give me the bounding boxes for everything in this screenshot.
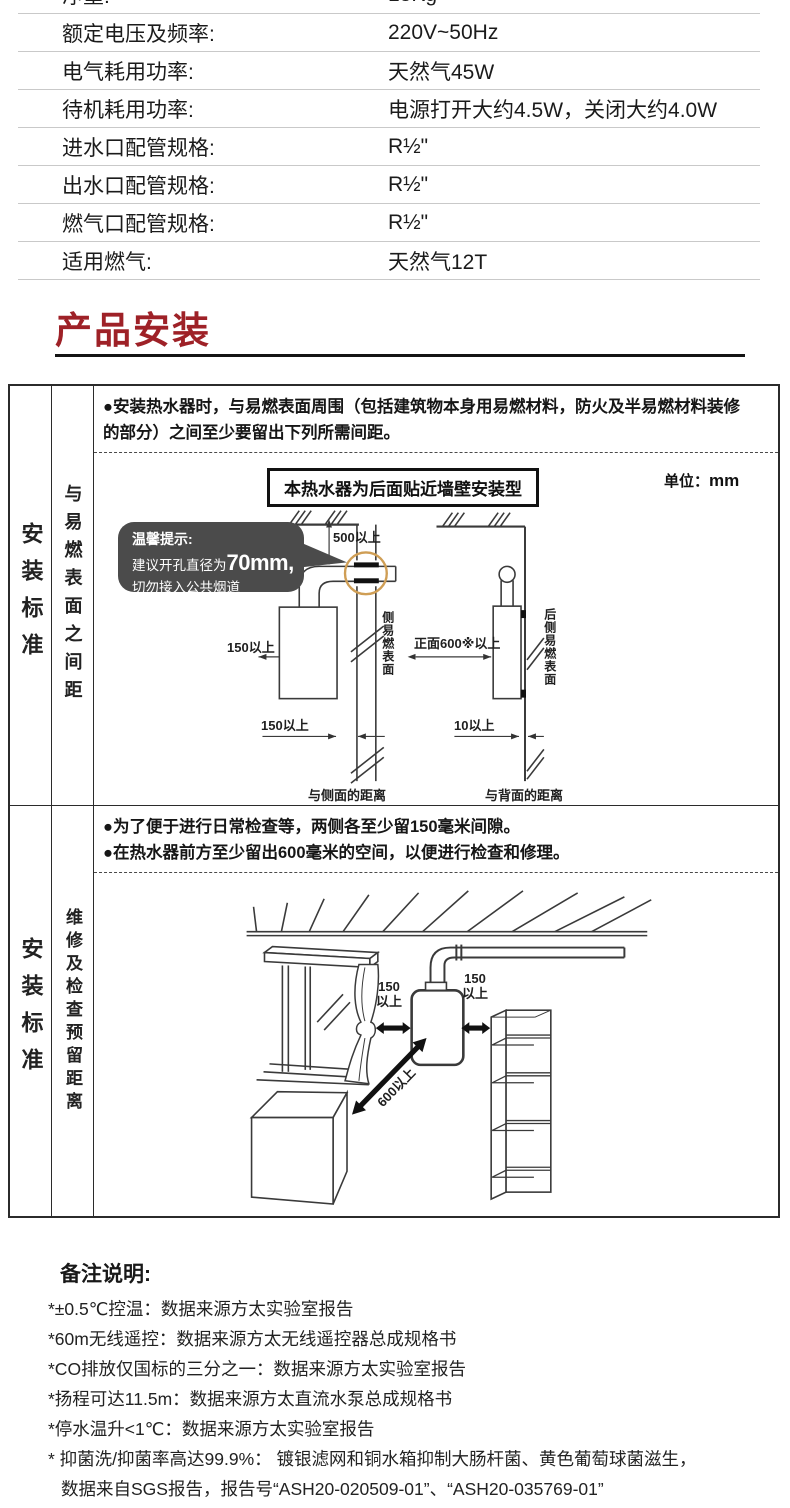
note-item: * 抑菌洗/抑菌率高达99.9%： 镀银滤网和铜水箱抑制大肠杆菌、黄色葡萄球菌滋…	[48, 1444, 768, 1474]
row-note-text: ●安装热水器时，与易燃表面周围（包括建筑物本身用易燃材料，防火及半易燃材料装修 …	[94, 386, 778, 453]
table-row: 电气耗用功率: 天然气45W	[18, 52, 760, 90]
spec-label: 适用燃气:	[62, 246, 152, 276]
heading-underline	[55, 354, 745, 357]
spec-table: 净重: 13Kg 额定电压及频率: 220V~50Hz 电气耗用功率: 天然气4…	[0, 0, 790, 280]
service-clearance-diagram: 150 以上 150 以上 600以上	[94, 873, 778, 1216]
spec-label: 电气耗用功率:	[62, 56, 194, 86]
spec-label: 进水口配管规格:	[62, 132, 215, 162]
table-row: 燃气口配管规格: R½"	[18, 204, 760, 242]
note-line: ●在热水器前方至少留出600毫米的空间，以便进行检查和修理。	[103, 844, 570, 862]
tip-line2: 建议开孔直径为70mm,	[132, 550, 304, 576]
table-row: 净重: 13Kg	[18, 0, 760, 14]
row-content: ●安装热水器时，与易燃表面周围（包括建筑物本身用易燃材料，防火及半易燃材料装修 …	[94, 386, 778, 805]
note-line: ●为了便于进行日常检查等，两侧各至少留150毫米间隙。	[103, 818, 520, 836]
notes-heading: 备注说明:	[60, 1258, 151, 1288]
tip-line3: 切勿接入公共烟道	[132, 576, 304, 596]
row-side-header: 安装标准	[10, 806, 52, 1216]
install-row-flammable-clearance: 安装标准 与易燃表面之间距 ●安装热水器时，与易燃表面周围（包括建筑物本身用易燃…	[10, 386, 778, 806]
note-line: ●安装热水器时，与易燃表面周围（包括建筑物本身用易燃材料，防火及半易燃材料装修	[103, 398, 740, 416]
dim-front-600-label: 正面600※以上	[414, 637, 500, 652]
tip-title: 温馨提示:	[132, 529, 304, 549]
note-item: *±0.5℃控温：数据来源方太实验室报告	[48, 1294, 768, 1324]
spec-value: R½"	[388, 173, 428, 197]
spec-value: R½"	[388, 211, 428, 235]
clearance-diagram: 本热水器为后面贴近墙壁安装型 单位：mm 温馨提示: 建议开孔直径为70mm, …	[94, 453, 778, 805]
spec-label: 净重:	[62, 0, 110, 10]
left-150-arrow	[376, 1022, 411, 1034]
product-page: { "spec_table": { "rows": [ {"label": "净…	[0, 0, 790, 1508]
table-row: 适用燃气: 天然气12T	[18, 242, 760, 280]
rear-flammable-surface-label: 后侧易燃表面	[542, 608, 556, 686]
tip-bubble: 温馨提示: 建议开孔直径为70mm, 切勿接入公共烟道	[118, 522, 304, 592]
spec-value: 天然气45W	[388, 56, 494, 86]
unit-label: 单位：mm	[664, 470, 739, 491]
note-item: *CO排放仅国标的三分之一：数据来源方太实验室报告	[48, 1354, 768, 1384]
caption-side-distance: 与侧面的距离	[308, 789, 386, 804]
dim-150-bottom-label: 150以上	[261, 719, 309, 734]
spec-value: 220V~50Hz	[388, 21, 498, 45]
install-row-service-clearance: 安装标准 维修及检查预留距离 ●为了便于进行日常检查等，两侧各至少留150毫米间…	[10, 806, 778, 1216]
note-item: 数据来自SGS报告，报告号“ASH20-020509-01”、“ASH20-03…	[48, 1474, 768, 1504]
table-row: 进水口配管规格: R½"	[18, 128, 760, 166]
spec-value: R½"	[388, 135, 428, 159]
note-item: *扬程可达11.5m：数据来源方太直流水泵总成规格书	[48, 1384, 768, 1414]
spec-value: 天然气12T	[388, 246, 487, 276]
category-header-label: 维修及检查预留距离	[60, 908, 85, 1115]
spec-label: 额定电压及频率:	[62, 18, 215, 48]
row-category-header: 维修及检查预留距离	[52, 806, 94, 1216]
side-header-label: 安装标准	[15, 937, 47, 1085]
dim-150-side-label: 150以上	[227, 641, 275, 656]
row-content: ●为了便于进行日常检查等，两侧各至少留150毫米间隙。 ●在热水器前方至少留出6…	[94, 806, 778, 1216]
row-note-text: ●为了便于进行日常检查等，两侧各至少留150毫米间隙。 ●在热水器前方至少留出6…	[94, 806, 778, 873]
diagram-title-box: 本热水器为后面贴近墙壁安装型	[267, 468, 539, 507]
table-row: 出水口配管规格: R½"	[18, 166, 760, 204]
service-diagram-drawing	[94, 873, 775, 1215]
spec-value: 13Kg	[388, 0, 437, 7]
note-item: *停水温升<1℃：数据来源方太实验室报告	[48, 1414, 768, 1444]
spec-label: 燃气口配管规格:	[62, 208, 215, 238]
spec-label: 待机耗用功率:	[62, 94, 194, 124]
note-item: *60m无线遥控：数据来源方太无线遥控器总成规格书	[48, 1324, 768, 1354]
dim-10-label: 10以上	[454, 719, 494, 734]
page-title: 产品安装	[55, 300, 211, 354]
note-line: 的部分）之间至少要留出下列所需间距。	[103, 424, 400, 442]
right-150-arrow	[461, 1022, 490, 1034]
flue-hole-highlight-circle	[345, 553, 387, 595]
row-side-header: 安装标准	[10, 386, 52, 805]
side-header-label: 安装标准	[15, 522, 47, 670]
spec-label: 出水口配管规格:	[62, 170, 215, 200]
wall-crossing-mark	[354, 578, 379, 583]
dim-150-left-label: 150 以上	[373, 980, 405, 1010]
category-header-label: 与易燃表面之间距	[60, 484, 86, 708]
table-row: 额定电压及频率: 220V~50Hz	[18, 14, 760, 52]
dim-150-right-label: 150 以上	[459, 972, 491, 1002]
caption-rear-distance: 与背面的距离	[485, 789, 563, 804]
wall-crossing-mark	[354, 563, 379, 568]
dim-500-label: 500以上	[333, 531, 381, 546]
notes-list: *±0.5℃控温：数据来源方太实验室报告 *60m无线遥控：数据来源方太无线遥控…	[48, 1294, 768, 1504]
installation-table: 安装标准 与易燃表面之间距 ●安装热水器时，与易燃表面周围（包括建筑物本身用易燃…	[8, 384, 780, 1218]
table-row: 待机耗用功率: 电源打开大约4.5W，关闭大约4.0W	[18, 90, 760, 128]
row-category-header: 与易燃表面之间距	[52, 386, 94, 805]
spec-value: 电源打开大约4.5W，关闭大约4.0W	[388, 94, 717, 124]
side-flammable-surface-label: 侧易燃表面	[380, 611, 394, 676]
